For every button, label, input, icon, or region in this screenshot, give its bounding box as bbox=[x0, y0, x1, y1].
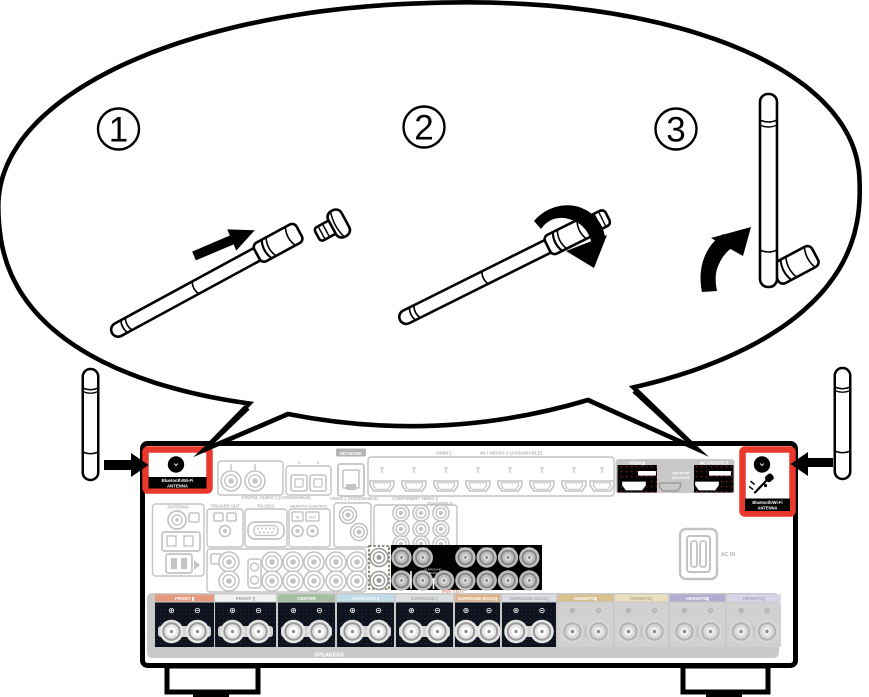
svg-text:REMOTE CONTROL: REMOTE CONTROL bbox=[290, 504, 329, 509]
svg-text:Bluetooth/Wi-Fi: Bluetooth/Wi-Fi bbox=[752, 500, 782, 505]
svg-text:FR.WIDE: FR.WIDE bbox=[459, 546, 472, 550]
svg-text:ZONE2: ZONE2 bbox=[396, 546, 406, 550]
svg-text:RS-232C: RS-232C bbox=[257, 504, 274, 509]
svg-text:TRIGGER OUT: TRIGGER OUT bbox=[210, 504, 240, 509]
svg-text:HDMI ▮: HDMI ▮ bbox=[629, 460, 645, 465]
svg-text:COMPONENT VIDEO ▯: COMPONENT VIDEO ▯ bbox=[392, 496, 438, 501]
svg-text:4K / HDCP2.3: 4K / HDCP2.3 bbox=[699, 460, 729, 465]
svg-text:SBW: SBW bbox=[526, 546, 533, 550]
svg-text:FRONT ▯: FRONT ▯ bbox=[236, 596, 256, 601]
svg-text:2: 2 bbox=[414, 109, 433, 148]
svg-text:NETWORK: NETWORK bbox=[340, 451, 363, 456]
svg-text:HEIGHT2▯: HEIGHT2▯ bbox=[743, 596, 766, 601]
svg-text:3: 3 bbox=[666, 111, 685, 150]
svg-text:SURROUND BACK▮: SURROUND BACK▮ bbox=[458, 596, 498, 601]
svg-text:SPEAKERS: SPEAKERS bbox=[314, 653, 344, 659]
svg-text:IN: IN bbox=[296, 516, 300, 520]
svg-text:HEIGHT2▮: HEIGHT2▮ bbox=[686, 596, 709, 601]
svg-text:OUT: OUT bbox=[309, 516, 317, 520]
svg-text:ARC/eARC: ARC/eARC bbox=[672, 476, 691, 480]
svg-text:ANTENNA: ANTENNA bbox=[167, 484, 188, 489]
svg-text:ANTENNA: ANTENNA bbox=[757, 505, 777, 510]
svg-text:FRONT ▮: FRONT ▮ bbox=[175, 596, 195, 601]
svg-text:ANTENNA: ANTENNA bbox=[167, 505, 189, 510]
svg-text:HEIGHT1▯: HEIGHT1▯ bbox=[630, 596, 653, 601]
svg-text:VIDEO ▯ (ASSIGNABLE): VIDEO ▯ (ASSIGNABLE) bbox=[330, 496, 379, 501]
svg-text:HEIGHT1▮: HEIGHT1▮ bbox=[574, 596, 597, 601]
svg-text:ZONE3: ZONE3 bbox=[418, 546, 428, 550]
svg-text:AC IN: AC IN bbox=[721, 552, 735, 558]
svg-text:SURROUND ▯: SURROUND ▯ bbox=[411, 596, 439, 601]
svg-text:CENTER: CENTER bbox=[481, 546, 494, 550]
svg-text:Bluetooth/Wi-Fi: Bluetooth/Wi-Fi bbox=[162, 478, 194, 483]
svg-text:1: 1 bbox=[109, 111, 128, 150]
svg-text:HDMI ▯: HDMI ▯ bbox=[436, 451, 452, 456]
svg-text:SURROUND BACK▯: SURROUND BACK▯ bbox=[509, 596, 549, 601]
svg-text:BACK: BACK bbox=[429, 571, 437, 575]
svg-text:DIGITAL AUDIO ▯ (ASSIGNABLE): DIGITAL AUDIO ▯ (ASSIGNABLE) bbox=[242, 495, 311, 500]
svg-text:CENTER: CENTER bbox=[297, 596, 317, 601]
svg-text:SURROUND ▮: SURROUND ▮ bbox=[352, 596, 380, 601]
svg-text:4K / HDCP2.3 (ASSIGNABLE): 4K / HDCP2.3 (ASSIGNABLE) bbox=[480, 451, 543, 456]
svg-text:FR.HIGH: FR.HIGH bbox=[502, 546, 514, 550]
